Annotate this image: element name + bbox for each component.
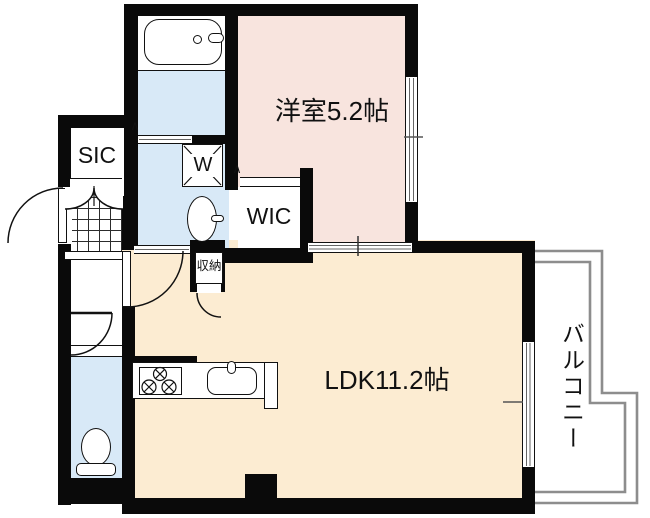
- entrance-step-edge: [65, 251, 122, 260]
- wic-door-track: [240, 177, 300, 187]
- wic-label: WIC: [236, 203, 302, 229]
- wall-ldk-top-right: [412, 241, 535, 253]
- wall-ldk-bottom: [122, 498, 535, 514]
- balcony-rail-outer: [535, 251, 637, 503]
- stove-box: [139, 367, 182, 395]
- floorplan: 洋室5.2帖 LDK11.2帖 バルコニー SIC WIC W 収納 ∧ ∧: [0, 0, 650, 518]
- entrance-door-leaf: [58, 188, 67, 243]
- wall-top: [125, 4, 418, 16]
- entrance-door-arc: [8, 188, 63, 243]
- toilet-tank: [76, 463, 116, 476]
- sic-label: SIC: [69, 142, 125, 168]
- entrance-tataki-hatch: [66, 190, 122, 253]
- ldk-label: LDK11.2帖: [303, 366, 471, 396]
- wall-pillar: [245, 474, 277, 500]
- washer-label: W: [191, 154, 215, 177]
- bathtub-drain: [193, 35, 202, 44]
- ldk-balcony-window: [522, 342, 535, 467]
- toilet-bowl: [81, 428, 111, 466]
- storage-label: 収納: [195, 259, 223, 273]
- wall-bath-door-stub: [192, 135, 225, 144]
- hallway-floor: [71, 253, 122, 357]
- balcony-label: バルコニー: [558, 282, 584, 492]
- kitchen-faucet: [227, 361, 236, 374]
- bath-sliding-door: [138, 135, 192, 144]
- western-room-sliding-door: [308, 242, 412, 253]
- washbasin-faucet: [211, 215, 224, 222]
- washroom-sliding-door: [134, 245, 190, 254]
- sic-door-track: [70, 178, 122, 188]
- western-room-window: [405, 77, 418, 202]
- wall-genkan-east: [122, 196, 138, 250]
- wic-door-swing-mark: ∧: [229, 162, 245, 177]
- storage-opening: [197, 284, 221, 293]
- toilet-door-track: [71, 345, 122, 357]
- western-room-label: 洋室5.2帖: [250, 97, 414, 127]
- wall-wic-bottom: [225, 248, 313, 263]
- wall-left-outer: [58, 115, 71, 505]
- wall-bath-left: [124, 4, 138, 196]
- wall-sic-top: [58, 115, 138, 128]
- bathtub-faucet: [208, 33, 224, 43]
- bath-door-swing-mark: ∧: [127, 119, 143, 134]
- hallway-door-leaf: [122, 251, 131, 307]
- kitchen-counter-return: [264, 362, 278, 409]
